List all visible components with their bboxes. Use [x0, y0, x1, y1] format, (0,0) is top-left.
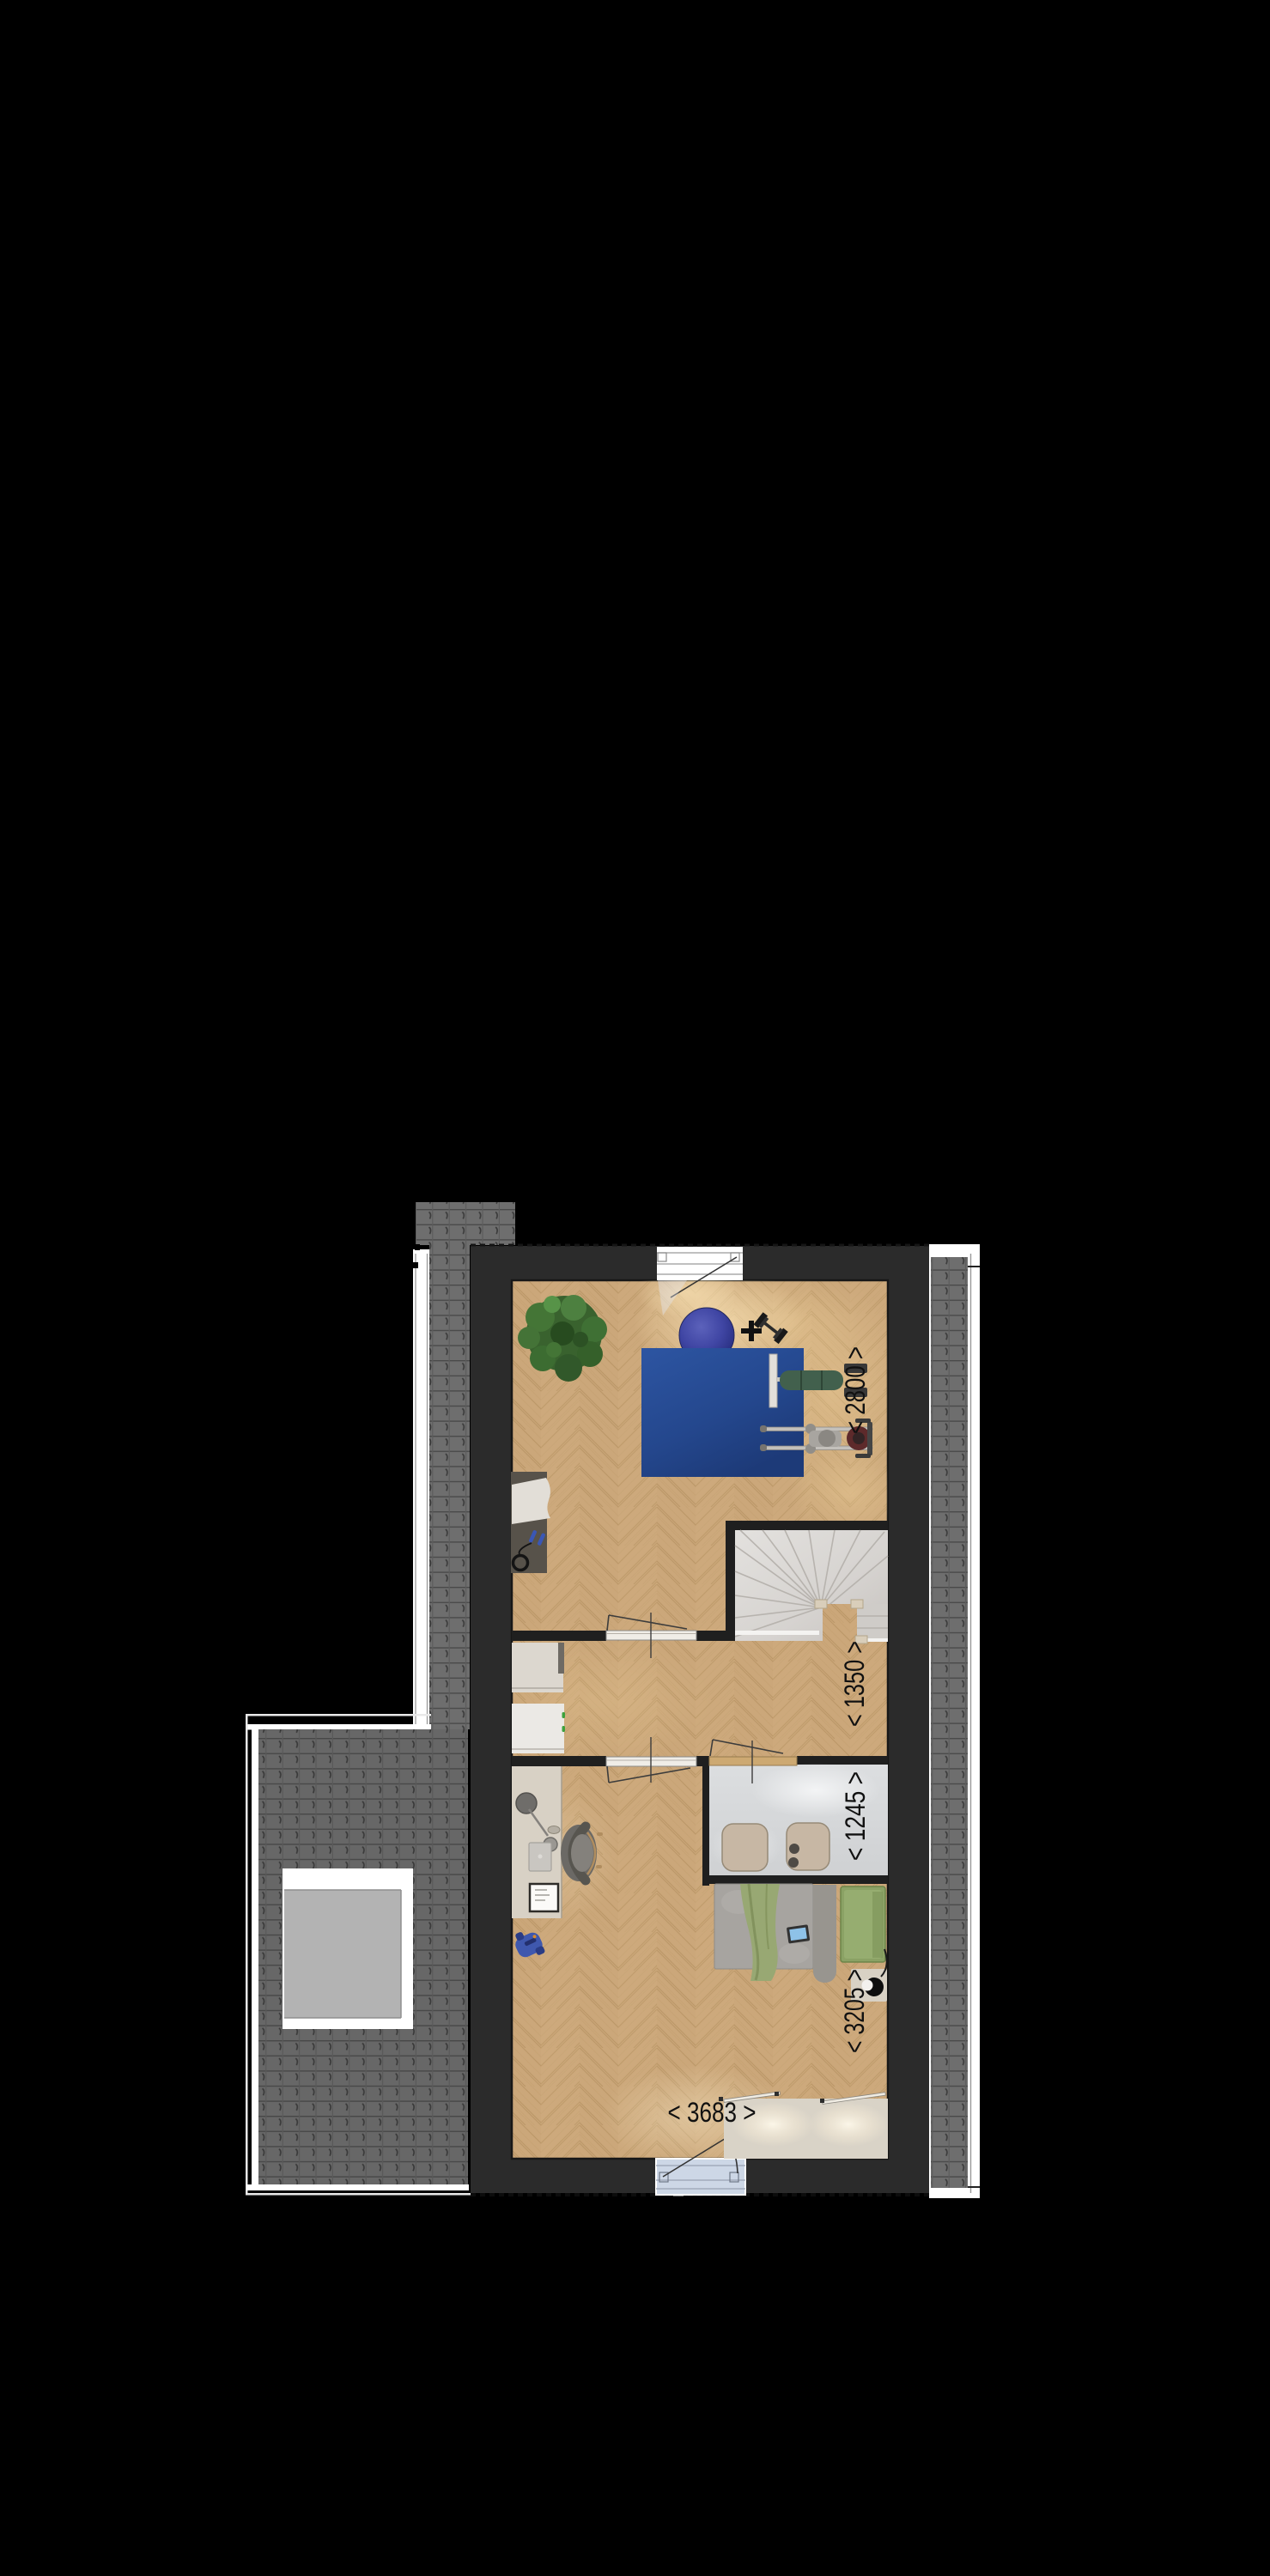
svg-text:< 2800 >: < 2800 > [840, 1346, 871, 1434]
svg-text:< 3683 >: < 3683 > [668, 2097, 757, 2128]
svg-text:< 1350 >: < 1350 > [839, 1641, 870, 1727]
svg-text:< 1245 >: < 1245 > [840, 1771, 871, 1861]
svg-text:< 3205 >: < 3205 > [839, 1969, 870, 2053]
